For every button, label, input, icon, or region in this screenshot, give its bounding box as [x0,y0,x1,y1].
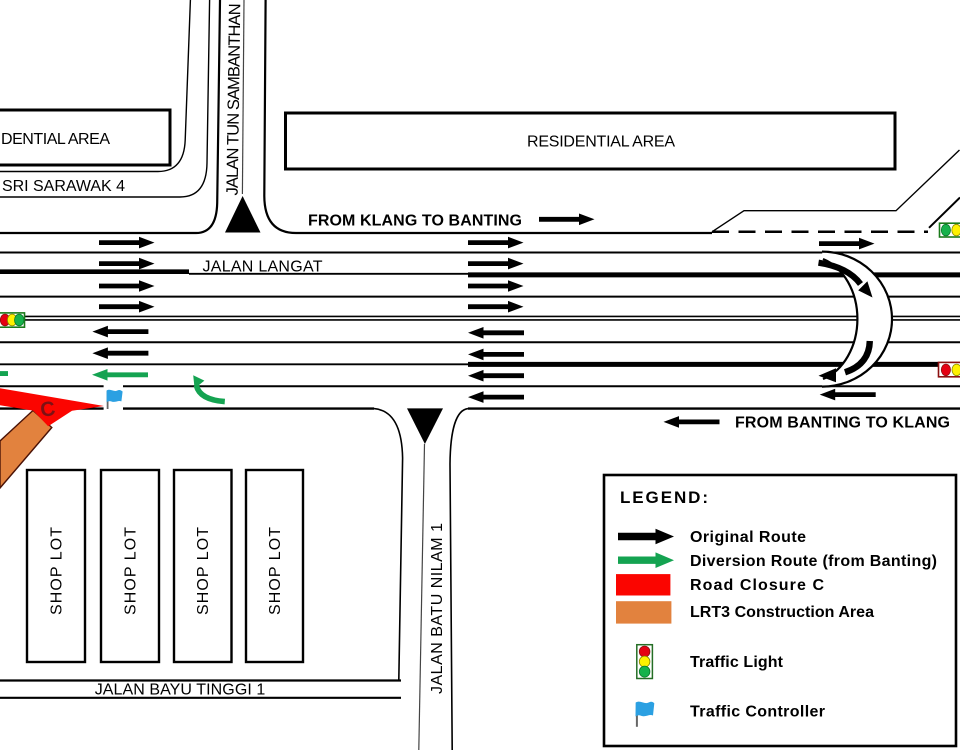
svg-text:SHOP LOT: SHOP LOT [123,527,140,615]
svg-text:Traffic Light: Traffic Light [690,654,784,671]
svg-text:JALAN TUN SAMBANTHAN: JALAN TUN SAMBANTHAN [224,3,245,195]
svg-text:JALAN BAYU TINGGI 1: JALAN BAYU TINGGI 1 [95,682,266,699]
svg-text:DENTIAL AREA: DENTIAL AREA [1,131,110,148]
svg-text:Traffic Controller: Traffic Controller [690,704,825,721]
svg-text:JALAN LANGAT: JALAN LANGAT [203,258,323,275]
svg-text:Original Route: Original Route [690,529,806,546]
svg-text:RESIDENTIAL AREA: RESIDENTIAL AREA [527,134,675,151]
svg-text:FROM KLANG TO BANTING: FROM KLANG TO BANTING [308,212,522,229]
svg-text:LRT3 Construction Area: LRT3 Construction Area [690,604,874,621]
svg-text:FROM BANTING TO KLANG: FROM BANTING TO KLANG [735,415,950,432]
svg-text:SRI SARAWAK 4: SRI SARAWAK 4 [2,178,125,195]
svg-text:Diversion Route (from Banting): Diversion Route (from Banting) [690,553,937,570]
svg-text:SHOP LOT: SHOP LOT [267,527,284,615]
svg-text:SHOP LOT: SHOP LOT [49,527,66,615]
svg-text:SHOP LOT: SHOP LOT [195,527,212,615]
svg-text:LEGEND:: LEGEND: [620,488,708,507]
svg-text:JALAN BATU NILAM 1: JALAN BATU NILAM 1 [429,523,446,694]
svg-text:Road Closure C: Road Closure C [690,577,824,594]
